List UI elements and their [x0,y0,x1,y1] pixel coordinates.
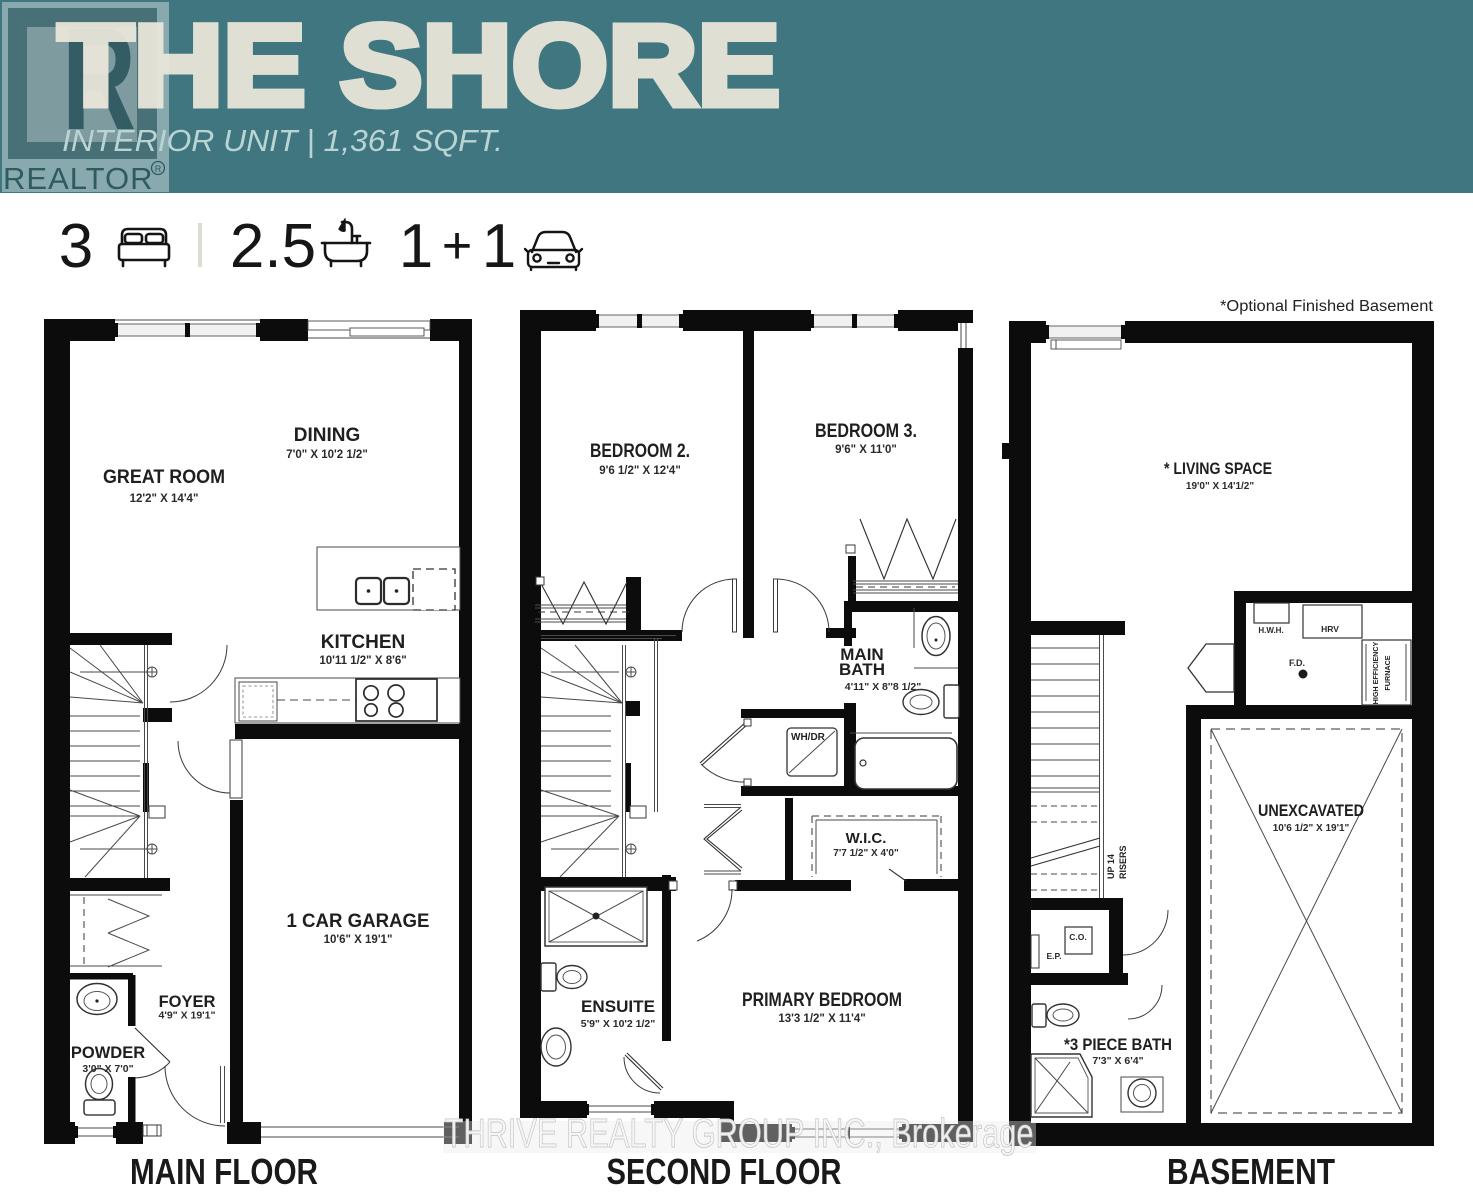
svg-text:FURNACE: FURNACE [1383,655,1392,690]
svg-text:FOYER: FOYER [159,993,216,1011]
svg-text:10'6" X 19'1": 10'6" X 19'1" [324,934,393,946]
svg-text:7'3" X 6'4": 7'3" X 6'4" [1092,1055,1143,1067]
svg-text:*3 PIECE BATH: *3 PIECE BATH [1064,1036,1172,1054]
svg-text:WH/DR: WH/DR [791,732,826,743]
svg-text:DINING: DINING [294,425,361,446]
svg-text:REALTOR: REALTOR [3,161,154,196]
svg-text:* LIVING SPACE: * LIVING SPACE [1164,459,1272,478]
svg-text:UP 14: UP 14 [1106,854,1116,879]
svg-text:BEDROOM 3.: BEDROOM 3. [815,421,917,442]
svg-text:INTERIOR UNIT | 1,361 SQFT.: INTERIOR UNIT | 1,361 SQFT. [62,123,503,158]
svg-text:9'6 1/2" X 12'4": 9'6 1/2" X 12'4" [599,465,681,477]
svg-text:C.O.: C.O. [1069,932,1086,942]
svg-text:HIGH EFFICIENCY: HIGH EFFICIENCY [1371,641,1380,704]
svg-text:GREAT ROOM: GREAT ROOM [103,467,225,488]
svg-text:W.I.C.: W.I.C. [846,830,887,847]
svg-text:3'0" X 7'0": 3'0" X 7'0" [82,1063,133,1075]
svg-text:THRIVE REALTY GROUP INC., Brok: THRIVE REALTY GROUP INC., Brokerage [445,1110,1034,1156]
svg-text:4'11" X 8''8 1/2": 4'11" X 8''8 1/2" [845,681,921,693]
svg-text:THE SHORE: THE SHORE [58,2,780,130]
svg-text:UNEXCAVATED: UNEXCAVATED [1258,802,1364,820]
svg-text:HRV: HRV [1321,624,1339,634]
svg-text:BATH: BATH [839,660,885,679]
svg-text:R: R [155,164,162,174]
svg-text:+: + [442,217,472,275]
svg-text:7'7 1/2" X 4'0": 7'7 1/2" X 4'0" [833,848,899,859]
svg-text:BASEMENT: BASEMENT [1167,1151,1335,1192]
svg-text:E.P.: E.P. [1047,951,1062,961]
svg-text:1: 1 [399,212,433,281]
svg-text:MAIN FLOOR: MAIN FLOOR [130,1151,318,1192]
svg-text:*Optional Finished Basement: *Optional Finished Basement [1220,298,1434,315]
svg-text:19'0" X 14'1/2": 19'0" X 14'1/2" [1186,481,1254,492]
svg-text:POWDER: POWDER [71,1044,145,1062]
svg-text:ENSUITE: ENSUITE [581,998,655,1016]
svg-text:F.D.: F.D. [1289,658,1305,668]
svg-text:3: 3 [59,212,93,281]
svg-text:9'6" X 11'0": 9'6" X 11'0" [835,444,897,456]
svg-text:12'2" X 14'4": 12'2" X 14'4" [130,493,199,505]
svg-text:7'0" X 10'2 1/2": 7'0" X 10'2 1/2" [286,449,368,461]
svg-text:1: 1 [482,212,516,281]
svg-text:SECOND FLOOR: SECOND FLOOR [607,1151,842,1192]
svg-text:5'9" X 10'2 1/2": 5'9" X 10'2 1/2" [581,1018,656,1030]
svg-text:H.W.H.: H.W.H. [1258,626,1283,635]
svg-text:BEDROOM 2.: BEDROOM 2. [590,441,690,462]
svg-text:KITCHEN: KITCHEN [321,632,405,653]
svg-text:10'11 1/2" X 8'6": 10'11 1/2" X 8'6" [319,655,406,667]
svg-text:4'9" X 19'1": 4'9" X 19'1" [159,1010,216,1022]
svg-text:PRIMARY BEDROOM: PRIMARY BEDROOM [742,990,902,1011]
svg-text:RISERS: RISERS [1118,845,1128,879]
svg-text:10'6 1/2" X 19'1": 10'6 1/2" X 19'1" [1273,823,1350,834]
svg-text:1 CAR GARAGE: 1 CAR GARAGE [287,911,430,932]
svg-text:13'3 1/2" X 11'4": 13'3 1/2" X 11'4" [778,1013,865,1025]
svg-text:2.5: 2.5 [230,212,316,281]
